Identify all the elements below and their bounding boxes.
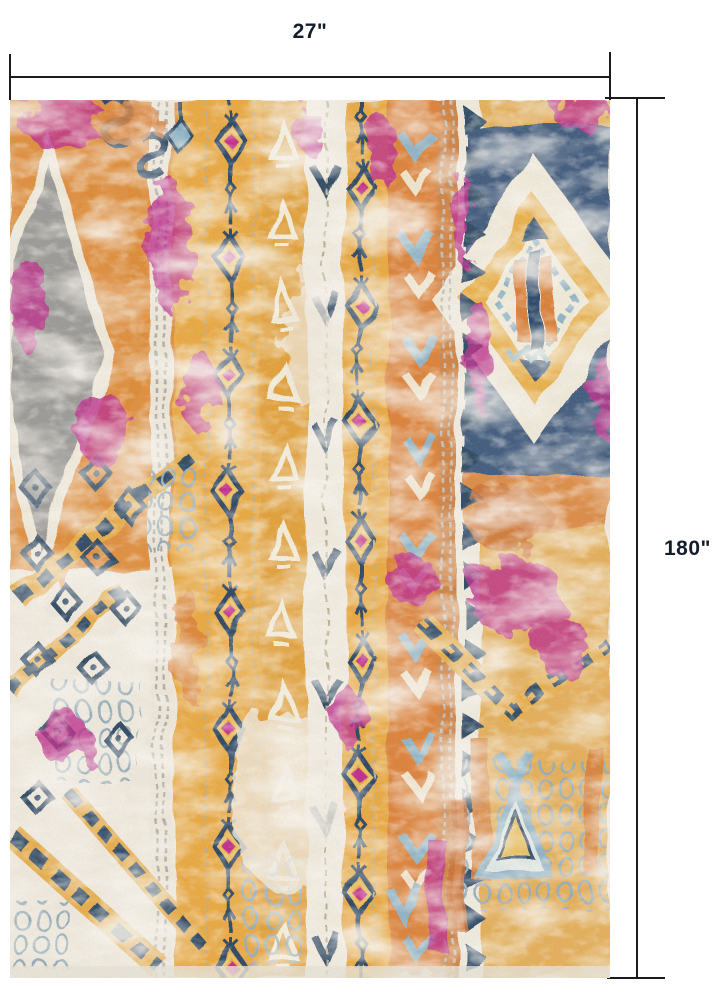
width-dimension-line xyxy=(9,76,611,78)
width-dimension-tick-left xyxy=(9,54,11,100)
height-dimension-tick-bottom xyxy=(607,977,665,979)
width-dimension-label: 27" xyxy=(10,20,610,44)
width-dimension-tick-right xyxy=(609,52,611,100)
height-dimension-label: 180" xyxy=(664,537,711,561)
height-dimension-tick-top xyxy=(605,97,665,99)
rug-product-image xyxy=(10,100,610,978)
product-dimension-diagram: 27" 180" xyxy=(0,0,726,1000)
height-dimension-line xyxy=(636,97,638,979)
